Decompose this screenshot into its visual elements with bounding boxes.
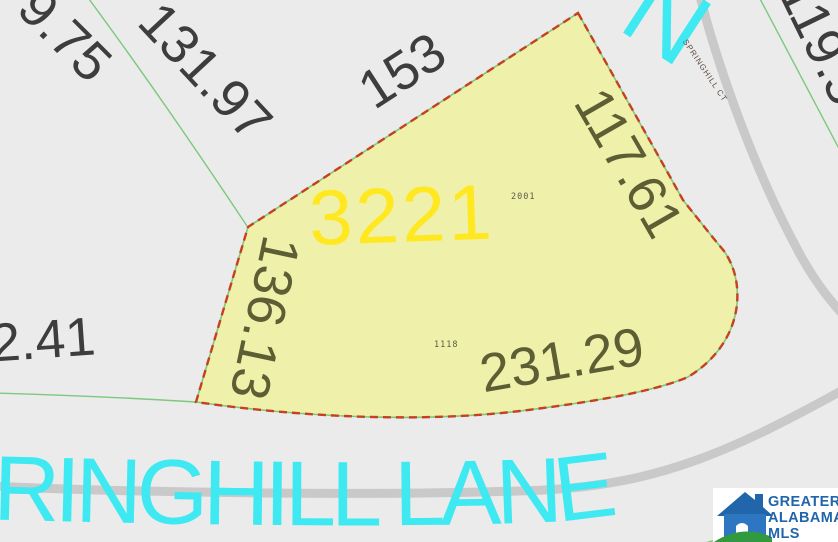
dimension-label-southwest: 2.41 bbox=[0, 306, 97, 373]
lot-number-label: 3221 bbox=[308, 168, 496, 262]
parcel-id-lower: 1118 bbox=[434, 340, 458, 350]
springhill-lane-label: SPRINGHILL LANE bbox=[0, 433, 618, 542]
mls-logo-text-line1: GREATER bbox=[768, 494, 838, 510]
lot-line-southwest bbox=[0, 393, 196, 402]
mls-logo-text-line2: ALABAMA bbox=[768, 510, 838, 526]
map-canvas[interactable]: 9.75 131.97 153 119.5 117.61 136.13 231.… bbox=[0, 0, 838, 542]
dimension-label-northwest-far: 9.75 bbox=[6, 0, 123, 94]
springhill-lane-label-text: SPRINGHILL LANE bbox=[0, 433, 618, 542]
parcel-id-upper: 2001 bbox=[511, 192, 535, 202]
dimension-label-northeast: 119.5 bbox=[766, 0, 838, 114]
dimension-label-northwest: 131.97 bbox=[127, 0, 284, 153]
mls-logo-text-line3: MLS bbox=[768, 526, 800, 542]
mls-logo: GREATER ALABAMA MLS bbox=[713, 488, 838, 542]
